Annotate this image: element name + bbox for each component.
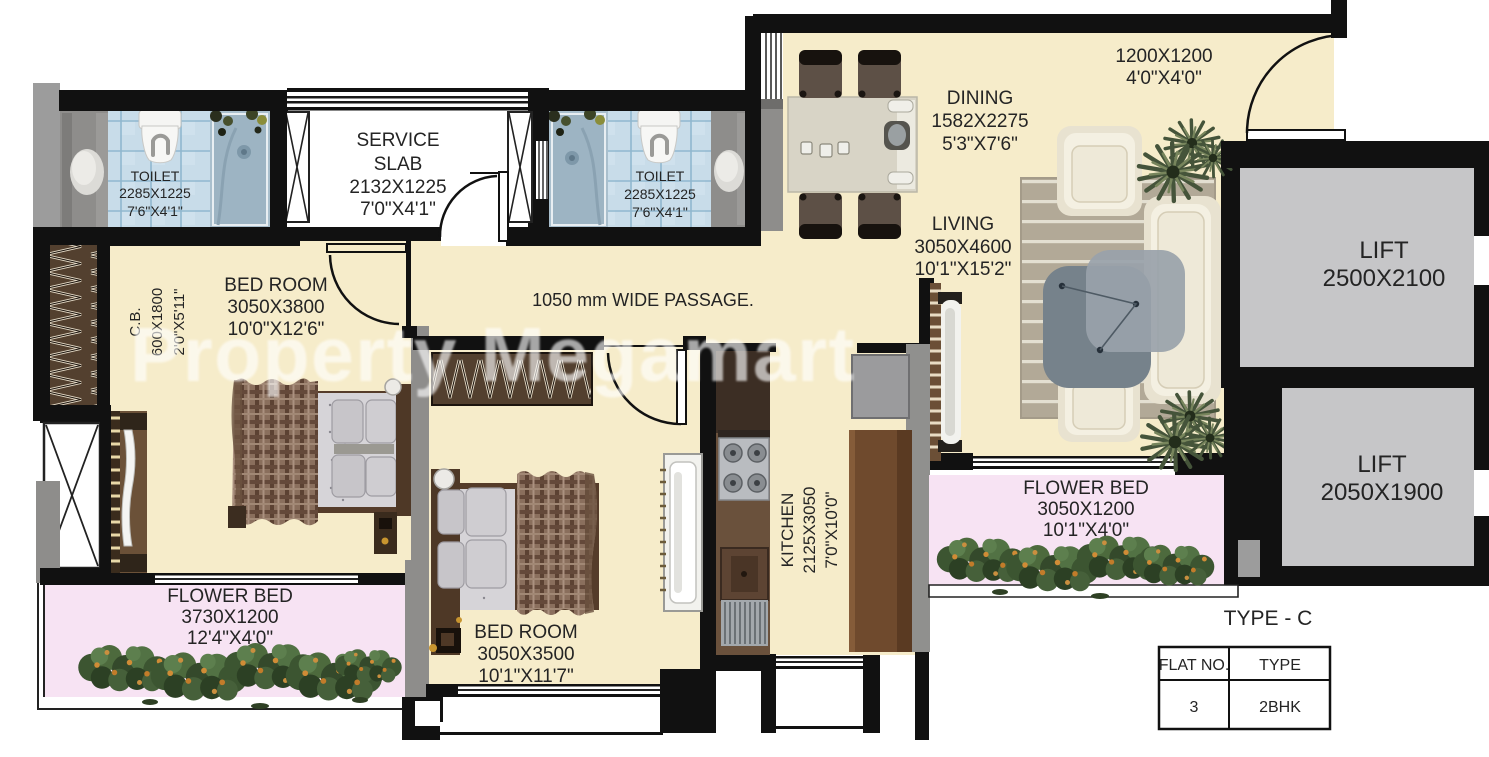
svg-text:2050X1900: 2050X1900 <box>1321 479 1444 506</box>
svg-text:3050X1200: 3050X1200 <box>1037 499 1134 520</box>
svg-text:2132X1225: 2132X1225 <box>349 177 446 198</box>
svg-text:10'1"X4'0": 10'1"X4'0" <box>1043 520 1129 541</box>
svg-text:Property Megamart: Property Megamart <box>130 312 856 398</box>
svg-text:2BHK: 2BHK <box>1259 699 1301 716</box>
svg-text:FLAT NO.: FLAT NO. <box>1159 657 1230 674</box>
svg-text:FLOWER BED: FLOWER BED <box>167 586 293 607</box>
svg-text:DINING: DINING <box>947 88 1014 109</box>
svg-text:SERVICE: SERVICE <box>356 130 439 151</box>
svg-text:SLAB: SLAB <box>374 154 423 175</box>
svg-text:1050 mm WIDE PASSAGE.: 1050 mm WIDE PASSAGE. <box>532 290 754 310</box>
svg-text:KITCHEN: KITCHEN <box>778 493 797 568</box>
svg-text:4'0"X4'0": 4'0"X4'0" <box>1126 68 1202 89</box>
svg-text:2285X1225: 2285X1225 <box>119 185 191 201</box>
svg-text:TOILET: TOILET <box>636 168 685 184</box>
svg-text:FLOWER BED: FLOWER BED <box>1023 478 1149 499</box>
svg-text:1200X1200: 1200X1200 <box>1115 46 1212 67</box>
svg-text:10'1"X11'7": 10'1"X11'7" <box>478 666 573 687</box>
svg-text:7'0"X4'1": 7'0"X4'1" <box>360 199 436 220</box>
svg-text:12'4"X4'0": 12'4"X4'0" <box>187 628 273 649</box>
svg-text:2125X3050: 2125X3050 <box>800 487 819 574</box>
svg-text:TYPE - C: TYPE - C <box>1224 607 1313 630</box>
svg-text:LIFT: LIFT <box>1357 451 1407 478</box>
svg-text:3: 3 <box>1190 699 1199 716</box>
svg-text:BED ROOM: BED ROOM <box>474 622 577 643</box>
svg-text:3050X4600: 3050X4600 <box>914 237 1011 258</box>
svg-text:5'3"X7'6": 5'3"X7'6" <box>942 134 1018 155</box>
svg-text:LIFT: LIFT <box>1359 237 1409 264</box>
svg-text:7'0"X10'0": 7'0"X10'0" <box>822 491 841 568</box>
svg-text:TOILET: TOILET <box>131 168 180 184</box>
svg-text:2500X2100: 2500X2100 <box>1323 265 1446 292</box>
svg-text:7'6"X4'1": 7'6"X4'1" <box>127 203 183 219</box>
svg-text:2285X1225: 2285X1225 <box>624 186 696 202</box>
svg-text:3730X1200: 3730X1200 <box>181 607 278 628</box>
svg-text:TYPE: TYPE <box>1259 657 1301 674</box>
svg-text:7'6"X4'1": 7'6"X4'1" <box>632 204 688 220</box>
svg-text:BED ROOM: BED ROOM <box>224 275 327 296</box>
svg-text:3050X3500: 3050X3500 <box>477 644 574 665</box>
svg-text:LIVING: LIVING <box>932 214 994 235</box>
svg-text:1582X2275: 1582X2275 <box>931 111 1028 132</box>
svg-text:10'1"X15'2": 10'1"X15'2" <box>915 259 1012 280</box>
